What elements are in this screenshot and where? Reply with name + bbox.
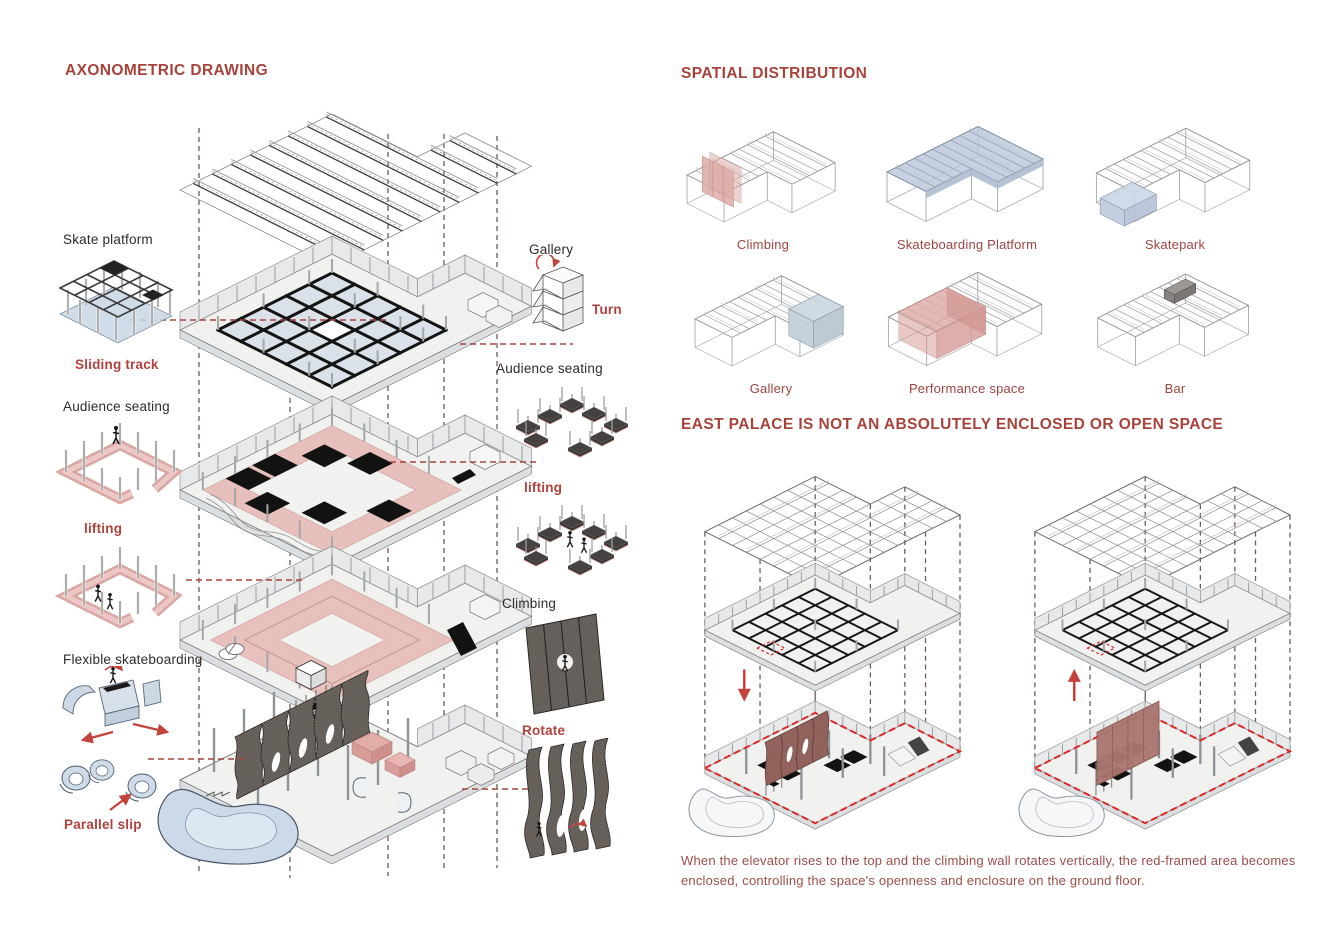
slip-arrow-icon — [110, 795, 130, 810]
spatial-thumb-bar: Bar — [1080, 260, 1270, 396]
right-audience-seating-callout-2 — [498, 498, 648, 590]
spatial-thumb-gallery: Gallery — [676, 262, 866, 396]
skate-platform-label: Skate platform — [63, 232, 153, 247]
right-audience-seating-callout-1 — [498, 382, 648, 472]
spatial-thumb-skatepark: Skatepark — [1080, 114, 1270, 252]
rotate-label: Rotate — [522, 723, 565, 738]
enclosed-state-diagram — [672, 443, 984, 837]
spatial-thumb-climbing: Climbing — [668, 118, 858, 252]
east-palace-title: EAST PALACE IS NOT AN ABSOLUTELY ENCLOSE… — [681, 416, 1223, 434]
slide-left-arrow-icon — [83, 732, 113, 740]
audience-seating-callout-2 — [52, 538, 192, 646]
audience-seating-right-label: Audience seating — [496, 361, 603, 376]
skateboarding-platform-highlight — [887, 127, 1043, 199]
open-state-diagram — [1002, 443, 1314, 837]
audience-seating-callout-1 — [52, 420, 192, 520]
lifting-left-label: lifting — [84, 521, 122, 536]
skate-platform-callout — [52, 252, 192, 357]
audience-seating-left-label: Audience seating — [63, 399, 170, 414]
lifting-right-label: lifting — [524, 480, 562, 495]
flexible-skateboarding-callout — [55, 666, 180, 751]
gallery-label: Gallery — [529, 242, 573, 257]
spatial-distribution-title: SPATIAL DISTRIBUTION — [681, 65, 867, 83]
slide-right-arrow-icon — [133, 724, 167, 732]
parallel-slip-callout — [50, 748, 180, 818]
roof-truss-layer — [180, 112, 532, 266]
climbing-label: Climbing — [502, 596, 556, 611]
sliding-track-label: Sliding track — [75, 357, 159, 372]
east-palace-caption: When the elevator rises to the top and t… — [681, 851, 1321, 890]
climbing-wall-callout — [520, 612, 620, 724]
skate-platform-level — [180, 236, 532, 414]
skatepark-highlight — [1100, 182, 1156, 226]
flexible-skateboarding-label: Flexible skateboarding — [63, 652, 202, 667]
spatial-thumb-skateboarding-platform: Skateboarding Platform — [872, 112, 1062, 252]
turn-label: Turn — [592, 302, 622, 317]
performance-level — [180, 396, 532, 574]
turn-arrow-icon — [537, 255, 555, 269]
presentation-board: AXONOMETRIC DRAWING — [0, 0, 1323, 935]
rotated-climbing-wall-callout — [515, 738, 620, 866]
ground-level — [158, 661, 531, 865]
spatial-thumb-performance-space: Performance space — [872, 258, 1062, 396]
parallel-slip-label: Parallel slip — [64, 817, 142, 832]
